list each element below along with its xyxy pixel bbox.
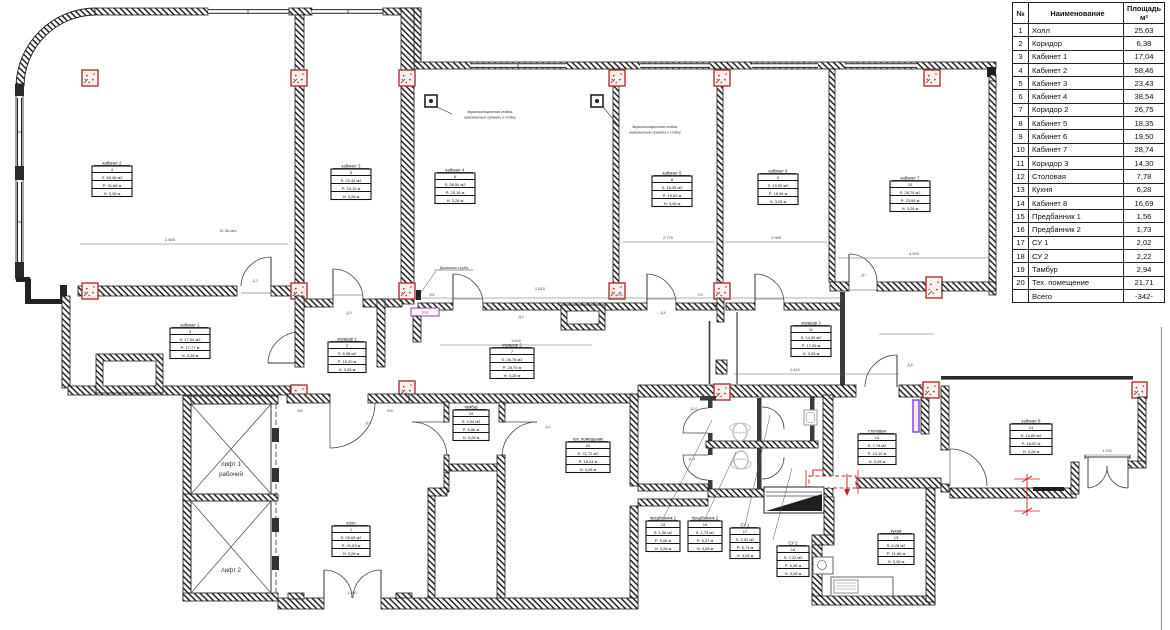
svg-text:S: 26,75 м2: S: 26,75 м2 <box>502 357 524 362</box>
svg-text:тамбур: тамбур <box>464 405 478 410</box>
svg-text:900: 900 <box>617 293 623 297</box>
svg-text:S: 2,94 м2: S: 2,94 м2 <box>462 419 482 424</box>
svg-text:S: 2,02 м2: S: 2,02 м2 <box>736 537 756 542</box>
svg-text:S: 7,78 м2: S: 7,78 м2 <box>868 443 888 448</box>
svg-text:тёпл: тёпл <box>422 311 429 315</box>
svg-text:кабинет 6: кабинет 6 <box>769 169 789 174</box>
svg-text:кухня: кухня <box>891 529 902 534</box>
svg-text:Звукоизоляционная стойка,: Звукоизоляционная стойка, <box>632 125 678 129</box>
svg-text:2.959: 2.959 <box>771 235 782 240</box>
svg-text:S: 2,22 м2: S: 2,22 м2 <box>784 555 804 560</box>
svg-text:H: 3,28 м: H: 3,28 м <box>343 551 360 556</box>
svg-text:S: 17,04 м2: S: 17,04 м2 <box>180 337 202 342</box>
svg-text:18: 18 <box>791 547 796 552</box>
svg-text:17: 17 <box>743 529 748 534</box>
svg-text:коридор 3: коридор 3 <box>801 321 821 326</box>
svg-text:Д-4: Д-4 <box>545 425 550 429</box>
svg-text:H: 3,28 м: H: 3,28 м <box>182 353 199 358</box>
svg-text:рабочий: рабочий <box>219 471 243 478</box>
svg-text:H: 3,28 м: H: 3,28 м <box>869 459 886 464</box>
svg-text:12: 12 <box>875 435 880 440</box>
svg-text:H: 3,28 м: H: 3,28 м <box>1023 449 1040 454</box>
svg-text:P: 18,02 м: P: 18,02 м <box>1022 441 1041 446</box>
svg-text:S: 16,69 м2: S: 16,69 м2 <box>1021 433 1043 438</box>
svg-text:10: 10 <box>908 182 913 187</box>
svg-text:S: 6,38 м2: S: 6,38 м2 <box>338 351 358 356</box>
svg-text:P: 28,75 м: P: 28,75 м <box>503 365 522 370</box>
svg-text:15: 15 <box>661 522 666 527</box>
svg-text:P: 13,10 м: P: 13,10 м <box>868 451 887 456</box>
svg-text:Д-7: Д-7 <box>861 273 866 277</box>
svg-text:2.440: 2.440 <box>790 368 800 372</box>
svg-text:14: 14 <box>1029 425 1034 430</box>
svg-text:13: 13 <box>894 535 899 540</box>
svg-text:Д-4: Д-4 <box>518 315 523 319</box>
svg-text:2.770: 2.770 <box>663 235 674 240</box>
svg-text:S: 21,72 м2: S: 21,72 м2 <box>578 451 600 456</box>
svg-text:P: 10,20 м: P: 10,20 м <box>338 359 357 364</box>
svg-text:H: 3,28 м: H: 3,28 м <box>339 367 356 372</box>
svg-text:P: 5,27 м: P: 5,27 м <box>697 538 714 543</box>
svg-text:H: 3,28 м: H: 3,28 м <box>447 198 464 203</box>
svg-text:S: 58,46 м2: S: 58,46 м2 <box>102 175 124 180</box>
svg-text:P: 17,77 м: P: 17,77 м <box>181 345 200 350</box>
svg-text:S: 6,28 м2: S: 6,28 м2 <box>887 543 907 548</box>
svg-text:P: 23,94 м: P: 23,94 м <box>901 198 920 203</box>
svg-text:P: 17,26 м: P: 17,26 м <box>802 343 821 348</box>
svg-text:столовая: столовая <box>868 429 886 434</box>
svg-text:P: 5,74 м: P: 5,74 м <box>737 545 754 550</box>
svg-text:Звукоизоляционная стойка,: Звукоизоляционная стойка, <box>467 110 513 114</box>
svg-text:H: 3,28 м: H: 3,28 м <box>463 435 480 440</box>
svg-text:H: 3,28 м: H: 3,28 м <box>737 553 754 558</box>
svg-text:СУ 2: СУ 2 <box>788 541 798 546</box>
svg-text:коридор 1: коридор 1 <box>337 337 357 342</box>
svg-text:S: 23,43 м2: S: 23,43 м2 <box>341 178 363 183</box>
svg-text:P: 19,52 м: P: 19,52 м <box>663 193 682 198</box>
svg-text:кабинет 7: кабинет 7 <box>901 176 921 181</box>
svg-text:S: 14,30 м2: S: 14,30 м2 <box>801 335 823 340</box>
svg-text:H: 3,28 м: H: 3,28 м <box>902 206 919 211</box>
svg-text:H: 3,28 м: H: 3,28 м <box>803 351 820 356</box>
svg-text:кабинет 5: кабинет 5 <box>663 171 683 176</box>
svg-text:S: 38,54 м2: S: 38,54 м2 <box>445 182 467 187</box>
svg-text:максимально прижать к стойку: максимально прижать к стойку <box>629 131 681 135</box>
svg-text:лифт 2: лифт 2 <box>221 567 242 574</box>
svg-text:P: 11,86 м: P: 11,86 м <box>887 551 906 556</box>
svg-text:S: 1,73 м2: S: 1,73 м2 <box>696 530 716 535</box>
svg-text:P: 5,06 м: P: 5,06 м <box>655 538 672 543</box>
svg-text:H: 3,28 м: H: 3,28 м <box>697 546 714 551</box>
svg-text:Д-10: Д-10 <box>691 407 698 411</box>
svg-text:19: 19 <box>469 411 474 416</box>
svg-text:31.36 м/п: 31.36 м/п <box>219 228 236 233</box>
svg-text:P: 25,16 м: P: 25,16 м <box>446 190 465 195</box>
svg-text:S: 19,50 м2: S: 19,50 м2 <box>768 183 790 188</box>
svg-text:тех. помещение: тех. помещение <box>572 437 604 442</box>
svg-text:лифт 1: лифт 1 <box>221 461 242 468</box>
svg-text:2.600: 2.600 <box>165 237 176 242</box>
svg-text:P: 21,03 м: P: 21,03 м <box>342 543 361 548</box>
svg-text:кабинет 3: кабинет 3 <box>342 164 362 169</box>
svg-text:кабинет 2: кабинет 2 <box>103 161 123 166</box>
svg-text:S: 28,74 м2: S: 28,74 м2 <box>900 190 922 195</box>
svg-text:Д-1: Д-1 <box>365 421 370 425</box>
svg-text:900: 900 <box>387 409 393 413</box>
svg-text:2.610: 2.610 <box>535 286 546 291</box>
svg-text:1.700: 1.700 <box>1102 449 1112 453</box>
svg-text:H: 3,28 м: H: 3,28 м <box>770 199 787 204</box>
svg-text:холл: холл <box>346 521 356 526</box>
svg-text:H: 3,28 м: H: 3,28 м <box>785 571 802 576</box>
svg-text:Д-5: Д-5 <box>346 311 351 315</box>
svg-text:H: 3,28 м: H: 3,28 м <box>104 191 121 196</box>
svg-text:P: 24,10 м: P: 24,10 м <box>342 186 361 191</box>
svg-text:Дымовая труба: Дымовая труба <box>440 265 469 270</box>
svg-text:S: 18,35 м2: S: 18,35 м2 <box>662 185 684 190</box>
svg-text:900: 900 <box>429 293 435 297</box>
svg-text:Д-8: Д-8 <box>907 363 912 367</box>
svg-text:P: 18,36 м: P: 18,36 м <box>769 191 788 196</box>
svg-text:P: 18,24 м: P: 18,24 м <box>579 459 598 464</box>
svg-text:Д-6: Д-6 <box>660 311 665 315</box>
svg-text:P: 31,68 м: P: 31,68 м <box>103 183 122 188</box>
svg-text:H: 3,28 м: H: 3,28 м <box>580 467 597 472</box>
svg-text:H: 3,28 м: H: 3,28 м <box>504 373 521 378</box>
svg-text:16: 16 <box>703 522 708 527</box>
svg-text:P: 5,98 м: P: 5,98 м <box>785 563 802 568</box>
svg-text:P: 6,86 м: P: 6,86 м <box>463 427 480 432</box>
svg-text:максимально прижать к стойку: максимально прижать к стойку <box>464 116 516 120</box>
svg-text:H: 3,28 м: H: 3,28 м <box>655 546 672 551</box>
svg-text:Д-3: Д-3 <box>252 279 257 283</box>
svg-text:4.520: 4.520 <box>909 251 920 256</box>
svg-text:H: 3,28 м: H: 3,28 м <box>664 201 681 206</box>
svg-text:S: 25,63 м2: S: 25,63 м2 <box>341 535 363 540</box>
svg-text:кабинет 4: кабинет 4 <box>446 168 466 173</box>
svg-text:H: 3,28 м: H: 3,28 м <box>888 559 905 564</box>
svg-text:900: 900 <box>297 409 303 413</box>
svg-text:H: 3,28 м: H: 3,28 м <box>343 194 360 199</box>
svg-text:S: 1,56 м2: S: 1,56 м2 <box>654 530 674 535</box>
svg-text:коридор 2: коридор 2 <box>502 343 522 348</box>
svg-text:700: 700 <box>697 293 703 297</box>
svg-text:1.200: 1.200 <box>348 591 357 595</box>
svg-text:кабинет 1: кабинет 1 <box>181 323 201 328</box>
svg-text:кабинет 8: кабинет 8 <box>1022 419 1042 424</box>
svg-text:20: 20 <box>586 443 591 448</box>
